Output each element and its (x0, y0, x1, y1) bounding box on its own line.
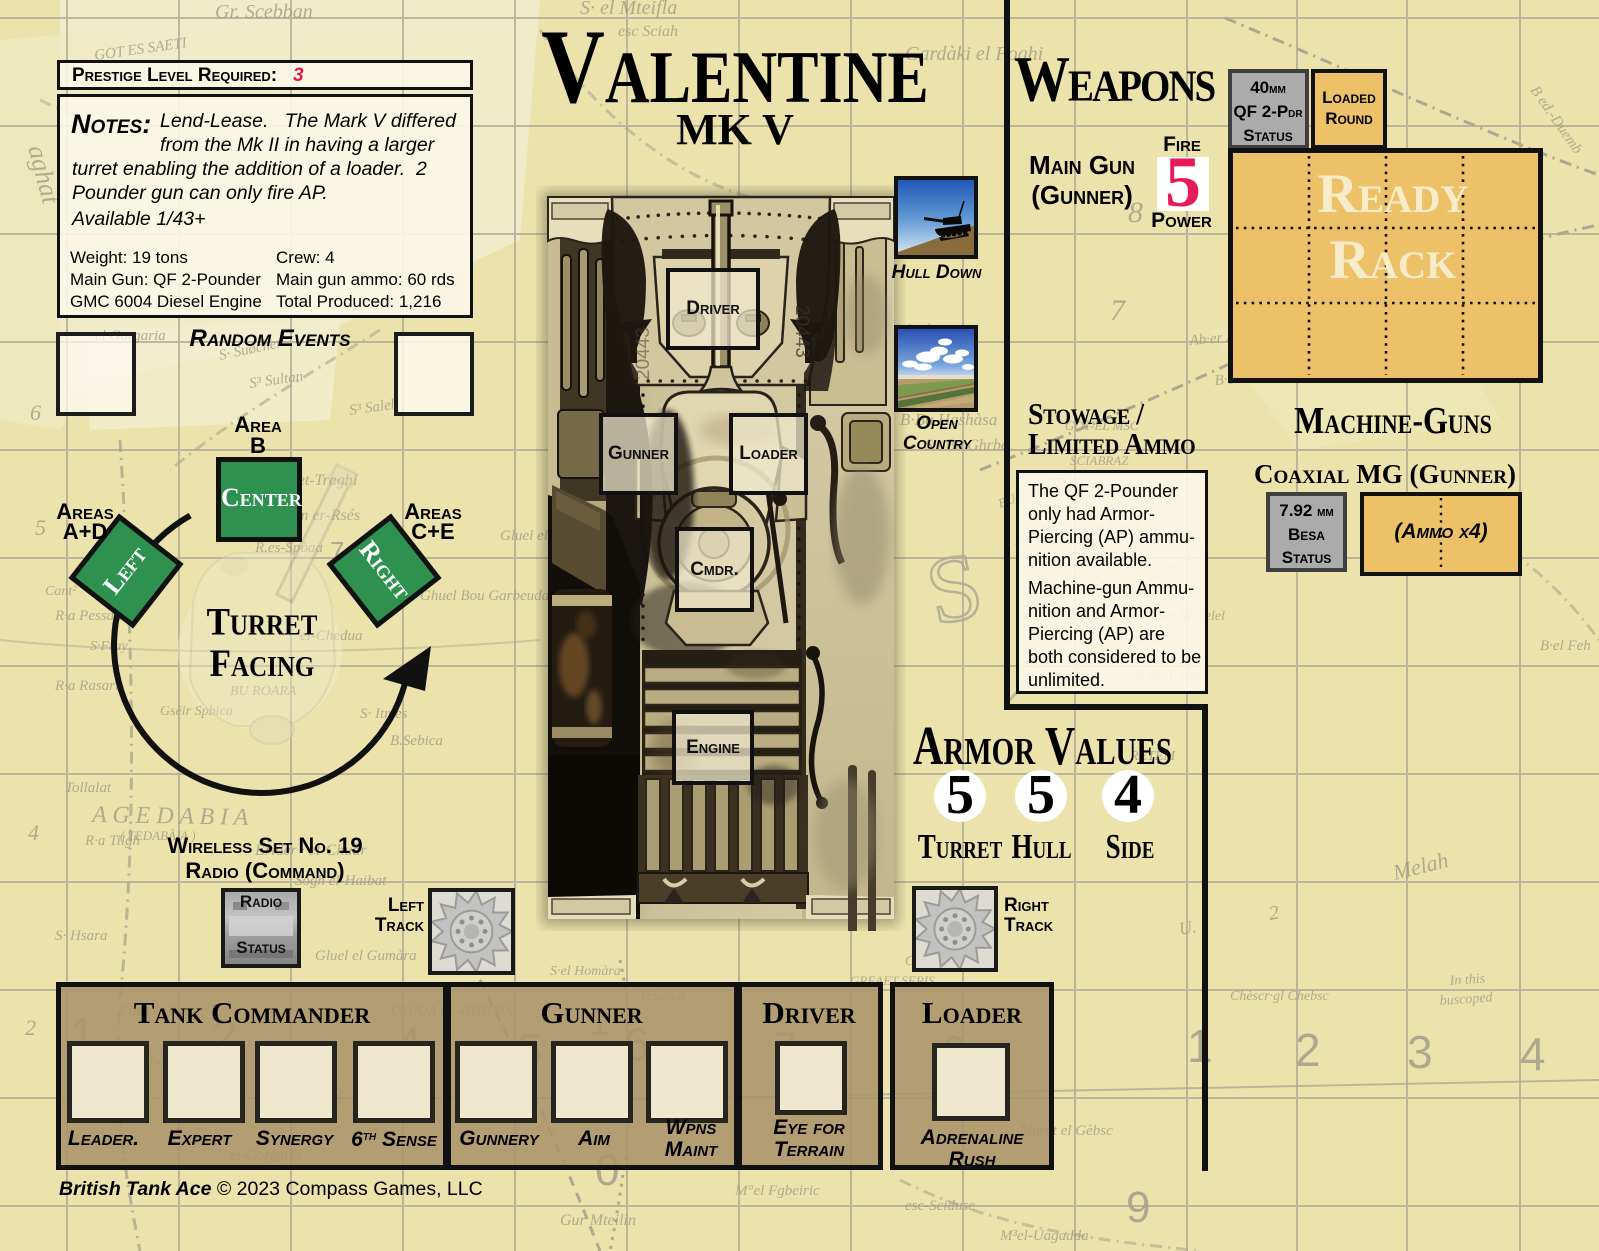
svg-text:2: 2 (1295, 1024, 1321, 1076)
svg-text:3: 3 (1407, 1026, 1433, 1078)
svg-text:B·el Feh: B·el Feh (1540, 638, 1591, 654)
svg-text:Gluel el Gumàra: Gluel el Gumàra (315, 948, 417, 964)
svg-text:S· Hsara: S· Hsara (55, 928, 108, 944)
svg-text:Gr. Scebban: Gr. Scebban (215, 1, 313, 23)
svg-text:M°el Fgbeiric: M°el Fgbeiric (734, 1183, 820, 1199)
svg-text:4: 4 (1520, 1028, 1546, 1080)
svg-text:S·el Homàra: S·el Homàra (550, 964, 621, 979)
svg-text:9: 9 (1126, 1183, 1150, 1232)
svg-text:Chèscr·gl Chebsc: Chèscr·gl Chebsc (1230, 989, 1330, 1004)
svg-text:2: 2 (25, 1015, 36, 1040)
svg-text:In this: In this (1448, 972, 1486, 990)
svg-text:M³el-Uagadda: M³el-Uagadda (999, 1228, 1089, 1244)
svg-text:esc-Sciduse: esc-Sciduse (905, 1198, 975, 1214)
svg-text:20443: 20443 (633, 327, 654, 380)
svg-text:20443: 20443 (791, 305, 812, 358)
svg-text:Gur Mteilin: Gur Mteilin (560, 1212, 636, 1229)
